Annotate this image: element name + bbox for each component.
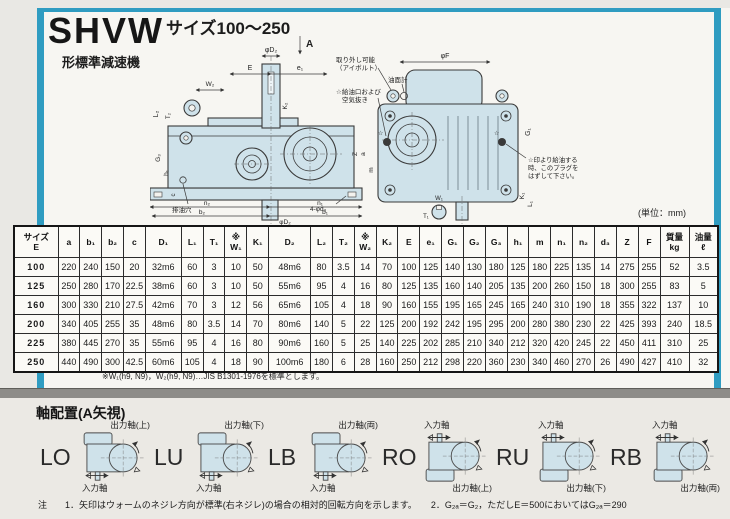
output-shaft-label: 出力軸(両) [610,483,724,494]
table-cell: 195 [463,315,485,334]
table-cell: 280 [80,277,102,296]
arrangement-code: LO [40,444,74,471]
table-cell: 18 [225,353,247,373]
table-cell: 360 [485,353,507,373]
table-cell: 80 [376,277,398,296]
table-cell: 212 [507,334,529,353]
table-cell: 65m6 [269,296,311,315]
input-shaft-label: 入力軸 [610,420,724,431]
table-cell: 255 [638,258,660,277]
table-row: 1002202401502032m6603105048m6803.5147010… [14,258,718,277]
table-cell: 4 [332,296,354,315]
table-cell: 192 [420,315,442,334]
table-cell: 25 [354,334,376,353]
dim-label: c [171,194,177,197]
arrangement-diagram [530,431,606,483]
table-size-cell: 160 [14,296,58,315]
side-view [150,56,362,224]
table-size-cell: 125 [14,277,58,296]
table-cell: 14 [594,258,616,277]
table-cell: 22.5 [123,277,145,296]
table-cell: 450 [616,334,638,353]
arrangement-code: LB [268,444,302,471]
table-cell: 35 [123,315,145,334]
arrangement-diagram [188,431,264,483]
table-cell: 6 [332,353,354,373]
table-header-cell: K₂ [376,226,398,258]
table-cell: 25 [689,334,718,353]
shaft-arrangement-section: 軸配置(A矢視) 出力軸(上)LO入力軸出力軸(下)LU入力軸出力軸(両)LB入… [0,398,730,519]
dim-label: W₂ [206,81,215,88]
arrangement-figure: RB [610,431,724,483]
table-header-row: サイズEab₁b₂cD₁L₁T₁※W₁K₁D₂L₂T₂※W₂K₂Ee₁G₁G₂G… [14,226,718,258]
table-cell: 22 [354,315,376,334]
table-cell: 90 [376,296,398,315]
table-cell: 5 [332,315,354,334]
table-cell: 10 [689,296,718,315]
table-cell: 210 [463,334,485,353]
table-cell: 190 [573,296,595,315]
table-cell: 90 [247,353,269,373]
table-header-cell: d₃ [594,226,616,258]
arrangement-figure: LB [268,431,382,483]
table-cell: 310 [660,334,689,353]
table-cell: 140 [311,315,333,334]
table-cell: 300 [616,277,638,296]
table-cell: 5 [689,277,718,296]
arrangement-diagram [74,431,150,483]
arrangement-figure: LU [154,431,268,483]
table-cell: 26 [594,353,616,373]
arrangement-figure: LO [40,431,154,483]
table-cell: 330 [80,296,102,315]
table-header-cell: 質量kg [660,226,689,258]
table-cell: 180 [485,258,507,277]
table-cell: 225 [551,258,573,277]
table-cell: 125 [507,258,529,277]
star-mark: ☆ [378,130,383,137]
table-cell: 270 [102,334,124,353]
table-cell: 411 [638,334,660,353]
table-cell: 100 [398,258,420,277]
table-cell: 310 [551,296,573,315]
table-header-cell: ※W₂ [354,226,376,258]
table-header-cell: T₂ [332,226,354,258]
table-cell: 242 [442,315,464,334]
callout-eyebolt: 取り外し可能 [336,55,376,64]
table-cell: 70 [181,296,203,315]
table-cell: 285 [442,334,464,353]
notes: 注 1．矢印はウォームのネジレ方向が標準(右ネジレ)の場合の相対的回転方向を示し… [38,498,627,511]
table-cell: 83 [660,277,689,296]
page-title: SHVW [48,10,164,52]
table-cell: 80 [311,258,333,277]
front-view: ☆ ☆ [378,70,518,224]
catalog-page: SHVW 形標準減速機 サイズ100～250 (単位：mm) [0,0,730,519]
table-cell: 340 [58,315,80,334]
table-cell: 60m6 [145,353,181,373]
table-size-cell: 250 [14,353,58,373]
table-cell: 100m6 [269,353,311,373]
arrangement-code: RO [382,444,416,471]
table-cell: 35 [123,334,145,353]
table-cell: 42.5 [123,353,145,373]
table-cell: 410 [660,353,689,373]
table-cell: 55m6 [269,277,311,296]
table-header-cell: G₁ [442,226,464,258]
table-cell: 10 [225,277,247,296]
table-cell: 260 [551,277,573,296]
table-cell: 220 [463,353,485,373]
table-header-cell: e₁ [420,226,442,258]
dim-label: T₁ [423,214,429,220]
table-cell: 3 [203,296,225,315]
table-cell: 240 [80,258,102,277]
table-cell: 195 [442,296,464,315]
table-row: 12525028017022.538m6603105055m6954168012… [14,277,718,296]
table-size-cell: 225 [14,334,58,353]
table-cell: 240 [529,296,551,315]
table-cell: 230 [507,353,529,373]
output-shaft-label: 出力軸(上) [40,420,154,431]
table-cell: 135 [507,277,529,296]
table-row: 16030033021027.542m6703125665m6105418901… [14,296,718,315]
input-shaft-label: 入力軸 [268,483,382,494]
table-cell: 250 [398,353,420,373]
arrangement-code: RB [610,444,644,471]
table-cell: 420 [551,334,573,353]
table-cell: 255 [638,277,660,296]
table-cell: 380 [551,315,573,334]
arrangement-LO: 出力軸(上)LO入力軸 [40,420,154,494]
table-cell: 340 [485,334,507,353]
dim-label: e₁ [297,65,304,72]
table-header-cell: Z [616,226,638,258]
table-cell: 20 [123,258,145,277]
table-header-cell: サイズE [14,226,58,258]
table-cell: 130 [463,258,485,277]
table-cell: 10 [225,258,247,277]
table-cell: 393 [638,315,660,334]
table-cell: 160 [311,334,333,353]
table-cell: 55m6 [145,334,181,353]
table-cell: 380 [58,334,80,353]
table-cell: 105 [311,296,333,315]
table-cell: 298 [442,353,464,373]
table-cell: 22 [594,334,616,353]
dim-label: L₂ [153,110,160,117]
input-shaft-label: 入力軸 [382,420,496,431]
table-cell: 202 [420,334,442,353]
table-header-cell: K₁ [247,226,269,258]
table-header-cell: a [58,226,80,258]
table-cell: 275 [616,258,638,277]
table-cell: 50 [247,277,269,296]
table-cell: 32 [689,353,718,373]
table-header-cell: ※W₁ [225,226,247,258]
arrangement-figure: RU [496,431,610,483]
dim-label: E [248,65,253,72]
table-cell: 295 [485,315,507,334]
table-size-cell: 200 [14,315,58,334]
table-cell: 80 [181,315,203,334]
table-cell: 445 [80,334,102,353]
table-cell: 90m6 [269,334,311,353]
table-cell: 4 [203,353,225,373]
table-size-cell: 100 [14,258,58,277]
table-cell: 5 [332,334,354,353]
table-header-cell: h₁ [507,226,529,258]
table-cell: 28 [354,353,376,373]
arrangement-diagram [302,431,378,483]
arrangement-LU: 出力軸(下)LU入力軸 [154,420,268,494]
output-shaft-label: 出力軸(両) [268,420,382,431]
page-margin-top [0,0,730,8]
input-shaft-label: 入力軸 [154,483,268,494]
table-cell: 3.5 [203,315,225,334]
input-shaft-label: 入力軸 [40,483,154,494]
table-cell: 427 [638,353,660,373]
table-cell: 200 [398,315,420,334]
dim-label: G₃ [155,154,162,162]
table-cell: 60 [181,258,203,277]
table-header-cell: T₁ [203,226,225,258]
table-cell: 322 [638,296,660,315]
table-cell: 180 [311,353,333,373]
table-cell: 32m6 [145,258,181,277]
table-cell: 125 [420,258,442,277]
table-header-cell: L₁ [181,226,203,258]
table-cell: 22 [594,315,616,334]
table-header-cell: b₂ [102,226,124,258]
table-cell: 140 [442,258,464,277]
table-cell: 135 [573,258,595,277]
page-subtitle: 形標準減速機 [62,52,140,71]
table-cell: 160 [442,277,464,296]
table-header-cell: L₂ [311,226,333,258]
table-cell: 255 [102,315,124,334]
output-shaft-label: 出力軸(下) [496,483,610,494]
table-row: 2253804452703555m6954168090m616052514022… [14,334,718,353]
table-cell: 105 [181,353,203,373]
table-header-cell: c [123,226,145,258]
table-cell: 200 [507,315,529,334]
dim-label: Z [352,152,359,156]
note-label: 注 [38,498,51,511]
table-header-cell: n₂ [573,226,595,258]
table-header-cell: G₃ [485,226,507,258]
table-cell: 170 [102,277,124,296]
table-cell: 425 [616,315,638,334]
table-header-cell: F [638,226,660,258]
callout-plug-note: はずして下さい。 [528,171,578,180]
table-cell: 230 [573,315,595,334]
arrangement-figure: RO [382,431,496,483]
table-cell: 48m6 [269,258,311,277]
dim-label: h₁ [163,169,170,176]
arrangement-diagram [416,431,492,483]
table-cell: 18 [594,296,616,315]
callout-plug-note: ☆印より給油する [528,155,578,164]
table-cell: 210 [102,296,124,315]
dim-label: L₁ [527,200,534,207]
table-cell: 165 [463,296,485,315]
table-cell: 95 [181,334,203,353]
arrangement-LB: 出力軸(両)LB入力軸 [268,420,382,494]
technical-drawing: φD₂ A E e₁ W₂ L₂ T₂ K₂ G₃ h₁ c Z a m [150,30,650,226]
dim-label: b₂ [199,209,206,216]
table-cell: 135 [420,277,442,296]
table-cell: 240 [660,315,689,334]
table-cell: 460 [551,353,573,373]
arrangement-code: RU [496,444,530,471]
arrangement-row: 出力軸(上)LO入力軸出力軸(下)LU入力軸出力軸(両)LB入力軸入力軸RO出力… [40,420,726,494]
arrangement-diagram [644,431,720,483]
table-cell: 18.5 [689,315,718,334]
dim-label: T₂ [166,112,172,119]
table-cell: 16 [225,334,247,353]
callout-oil-fill: 空気抜き [342,95,368,104]
callout-drain: 排油穴 [172,205,192,214]
table-cell: 14 [225,315,247,334]
table-cell: 70 [376,258,398,277]
table-cell: 3 [203,258,225,277]
note-1: 1．矢印はウォームのネジレ方向が標準(右ネジレ)の場合の相対的回転方向を示します… [65,498,417,511]
table-cell: 18 [594,277,616,296]
table-cell: 225 [398,334,420,353]
table-cell: 16 [354,277,376,296]
table-cell: 95 [311,277,333,296]
table-cell: 3.5 [332,258,354,277]
table-row: 25044049030042.560m610541890100m61806281… [14,353,718,373]
dim-label: φF [441,53,450,60]
table-cell: 340 [529,353,551,373]
arrangement-code: LU [154,444,188,471]
table-cell: 140 [463,277,485,296]
table-cell: 300 [102,353,124,373]
arrangement-RO: 入力軸RO出力軸(上) [382,420,496,494]
table-cell: 3 [203,277,225,296]
dim-label: W₁ [435,196,443,202]
table-cell: 355 [616,296,638,315]
callout-oil-fill: ☆給油口および [336,87,381,96]
table-cell: 56 [247,296,269,315]
table-cell: 212 [420,353,442,373]
table-cell: 80 [247,334,269,353]
table-cell: 490 [616,353,638,373]
table-cell: 125 [376,315,398,334]
table-cell: 18 [354,296,376,315]
table-cell: 125 [398,277,420,296]
technical-drawing-svg: φD₂ A E e₁ W₂ L₂ T₂ K₂ G₃ h₁ c Z a m [150,30,650,226]
table-cell: 38m6 [145,277,181,296]
table-header-cell: b₁ [80,226,102,258]
dim-label: K₁ [519,192,526,199]
table-cell: 245 [573,334,595,353]
table-header-cell: n₁ [551,226,573,258]
table-cell: 320 [529,334,551,353]
table-cell: 52 [660,258,689,277]
table-cell: 48m6 [145,315,181,334]
table-cell: 165 [507,296,529,315]
table-cell: 205 [485,277,507,296]
table-cell: 27.5 [123,296,145,315]
view-arrow-label: A [306,39,313,50]
table-cell: 3.5 [689,258,718,277]
table-footnote: ※W₁(h9, N9)，W₂(h9, N9)…JIS B1301-1976を標準… [102,371,324,382]
table-cell: 250 [58,277,80,296]
arrangement-RU: 入力軸RU出力軸(下) [496,420,610,494]
table-cell: 490 [80,353,102,373]
arrangement-RB: 入力軸RB出力軸(両) [610,420,724,494]
table-cell: 70 [247,315,269,334]
dim-label: a [360,152,367,156]
dim-label: φD₂ [265,47,278,54]
table-cell: 200 [529,277,551,296]
callout-plug-note: 時、このプラグを [528,163,578,172]
table-cell: 270 [573,353,595,373]
table-row: 2003404052553548m6803.5147080m6140522125… [14,315,718,334]
table-header-cell: D₂ [269,226,311,258]
star-mark: ☆ [494,130,499,137]
table-cell: 405 [80,315,102,334]
table-cell: 80m6 [269,315,311,334]
table-cell: 42m6 [145,296,181,315]
table-cell: 140 [376,334,398,353]
table-cell: 60 [181,277,203,296]
dim-label: G₁ [525,127,532,135]
callout-holes: 4-φd₃ [310,206,327,213]
table-header-cell: E [398,226,420,258]
table-header-cell: D₁ [145,226,181,258]
table-cell: 245 [485,296,507,315]
table-cell: 180 [529,258,551,277]
table-cell: 14 [354,258,376,277]
table-cell: 160 [376,353,398,373]
table-cell: 155 [420,296,442,315]
table-cell: 4 [203,334,225,353]
table-cell: 137 [660,296,689,315]
callout-oil-gauge: 油面計 [388,75,408,84]
input-shaft-label: 入力軸 [496,420,610,431]
dim-label: n₂ [204,200,211,207]
note-2: 2．G₂ₐ＝G₂，ただしE＝500においてはG₂ₐ＝290 [431,498,627,511]
table-cell: 4 [332,277,354,296]
table-cell: 280 [529,315,551,334]
callout-eyebolt: （アイボルト） [336,64,381,72]
table-cell: 150 [102,258,124,277]
table-cell: 150 [573,277,595,296]
table-cell: 440 [58,353,80,373]
dim-label: K₂ [282,102,289,109]
dimension-table: サイズEab₁b₂cD₁L₁T₁※W₁K₁D₂L₂T₂※W₂K₂Ee₁G₁G₂G… [13,225,719,373]
table-header-cell: 油量ℓ [689,226,718,258]
table-header-cell: G₂ [463,226,485,258]
output-shaft-label: 出力軸(下) [154,420,268,431]
table-header-cell: m [529,226,551,258]
table-cell: 220 [58,258,80,277]
dim-label: m [368,167,375,172]
table-cell: 300 [58,296,80,315]
table-cell: 160 [398,296,420,315]
table-cell: 50 [247,258,269,277]
output-shaft-label: 出力軸(上) [382,483,496,494]
table-cell: 12 [225,296,247,315]
